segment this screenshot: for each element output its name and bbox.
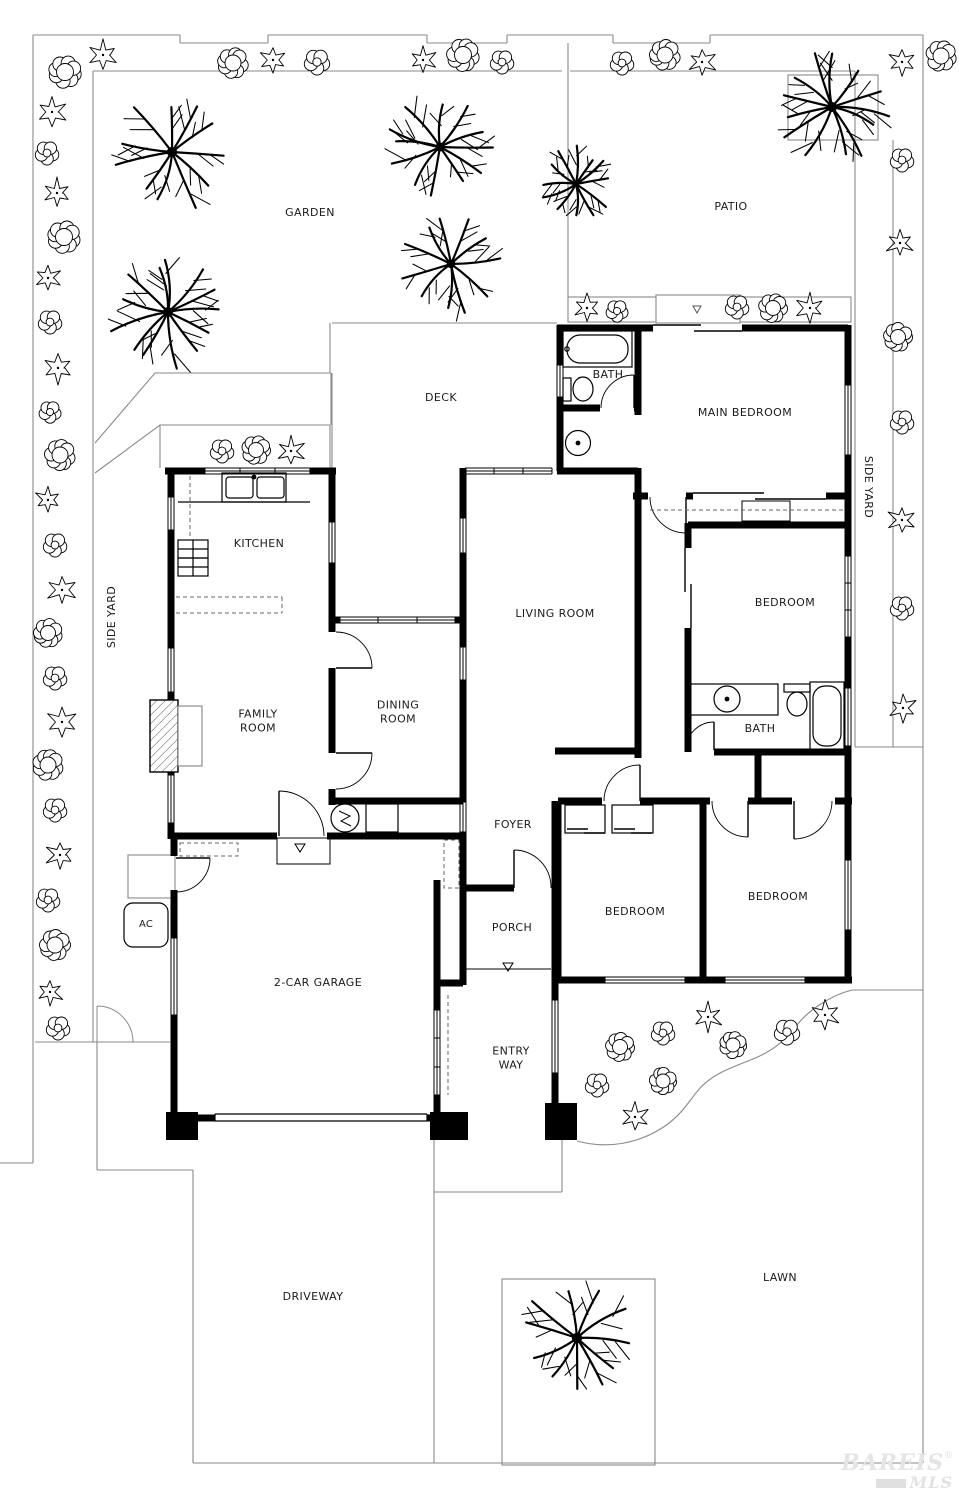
shrub-icon: [45, 177, 68, 206]
shrub-icon: [48, 707, 76, 737]
shrub-icon: [650, 40, 681, 71]
shrub-icon: [43, 667, 67, 690]
tree-icon: [112, 99, 224, 208]
label-side-yard-right: SIDE YARD: [861, 456, 875, 518]
label-driveway: DRIVEWAY: [283, 1290, 344, 1304]
label-family-room: FAMILY ROOM: [222, 707, 294, 735]
watermark-reg-icon: ®: [944, 1451, 953, 1461]
window: [465, 468, 552, 474]
window: [171, 938, 177, 1015]
window: [460, 518, 466, 553]
tree-icon: [385, 96, 495, 195]
label-deck: DECK: [425, 391, 457, 405]
shrub-icon: [210, 440, 234, 463]
shrub-icon: [39, 402, 61, 423]
shrub-icon: [585, 1074, 609, 1097]
dashed-lines: [176, 476, 843, 1095]
shrub-icon: [606, 301, 628, 322]
shrub-icon: [812, 999, 839, 1030]
shrub-icon: [886, 229, 913, 255]
shrub-icon: [43, 534, 67, 557]
watermark-bar: [876, 1479, 906, 1488]
window: [845, 688, 851, 746]
shrub-icon: [48, 221, 80, 253]
window: [845, 860, 851, 930]
window: [340, 617, 455, 623]
shrub-icon: [606, 1033, 635, 1062]
shrub-icon: [242, 436, 271, 464]
shrub-icon: [649, 1067, 676, 1094]
shrub-icon: [888, 508, 914, 532]
window: [557, 365, 563, 397]
shrub-icon: [40, 930, 71, 961]
window: [725, 977, 805, 983]
shrub-icon: [38, 311, 62, 334]
window: [552, 1000, 558, 1073]
shrub-icon: [260, 48, 284, 73]
window: [845, 556, 851, 637]
label-patio: PATIO: [714, 200, 747, 214]
shrub-icon: [278, 435, 304, 464]
shrub-icon: [45, 354, 70, 386]
label-ac: AC: [139, 919, 153, 932]
window: [168, 497, 174, 530]
fireplace: [150, 700, 202, 772]
shrub-icon: [37, 265, 61, 290]
shrub-icon: [36, 889, 60, 912]
window: [605, 977, 685, 983]
label-main-bedroom: MAIN BEDROOM: [698, 406, 792, 420]
window: [168, 648, 174, 692]
shrub-icon: [39, 981, 63, 1007]
label-garage: 2-CAR GARAGE: [274, 976, 362, 990]
label-entry-way: ENTRY WAY: [486, 1044, 536, 1072]
shrub-icon: [43, 799, 67, 822]
shrub-icon: [45, 440, 76, 471]
shrub-icon: [890, 694, 916, 723]
label-porch: PORCH: [492, 921, 532, 935]
shrub-icon: [40, 97, 66, 127]
shrub-icon: [889, 50, 914, 77]
window: [168, 775, 174, 823]
shrub-icon: [36, 486, 59, 512]
label-bath2: BATH: [745, 722, 776, 736]
shrub-icon: [33, 750, 63, 780]
window: [329, 522, 335, 563]
shrub-icon: [884, 323, 913, 352]
shrub-icon: [49, 56, 81, 88]
shrub-icon: [651, 1022, 675, 1045]
window: [434, 1010, 440, 1095]
shrub-icon: [447, 39, 480, 71]
shrub-icon: [774, 1020, 799, 1045]
window: [460, 647, 466, 680]
bareis-mls-watermark: BAREIS® MLS: [841, 1452, 953, 1491]
shrub-icon: [90, 39, 116, 70]
label-kitchen: KITCHEN: [234, 537, 284, 551]
shrub-icon: [926, 41, 956, 71]
sliding-doors: [653, 325, 826, 628]
label-bath-main: BATH: [593, 368, 624, 382]
shrub-icon: [46, 1017, 70, 1040]
tree-icon: [522, 1281, 630, 1389]
shrub-icon: [34, 619, 63, 648]
window: [460, 802, 466, 832]
tree-icon: [778, 51, 891, 161]
window: [845, 385, 851, 455]
shrub-icon: [35, 142, 59, 165]
shrub-icon: [623, 1102, 648, 1130]
label-side-yard-left: SIDE YARD: [105, 586, 119, 648]
label-bedroom-bottom-right: BEDROOM: [748, 890, 808, 904]
tree-icon: [108, 258, 218, 373]
label-foyer: FOYER: [494, 818, 532, 832]
shrub-icon: [412, 46, 436, 73]
label-garden: GARDEN: [285, 206, 335, 220]
label-bedroom-mid: BEDROOM: [755, 596, 815, 610]
tree-icon: [543, 146, 611, 216]
fixtures: [178, 331, 844, 971]
shrub-icon: [890, 597, 914, 620]
shrub-icon: [696, 1001, 722, 1033]
floor-plan-drawing: [0, 0, 959, 1499]
watermark-sub: MLS: [909, 1475, 953, 1491]
tree-icon: [401, 219, 502, 322]
label-bedroom-bottom-mid: BEDROOM: [605, 905, 665, 919]
shrub-icon: [720, 1032, 747, 1059]
shrub-icon: [890, 149, 914, 172]
shrub-icon: [48, 577, 76, 604]
label-lawn: LAWN: [763, 1271, 797, 1285]
shrub-icon: [46, 843, 71, 869]
floor-plan: GARDEN PATIO DECK BATH MAIN BEDROOM SIDE…: [0, 0, 959, 1499]
label-living-room: LIVING ROOM: [515, 607, 594, 621]
garage-door: [215, 1114, 427, 1121]
shrub-icon: [890, 411, 914, 434]
label-dining-room: DINING ROOM: [362, 698, 434, 726]
shrub-icon: [218, 48, 249, 79]
shrub-icon: [759, 294, 788, 323]
